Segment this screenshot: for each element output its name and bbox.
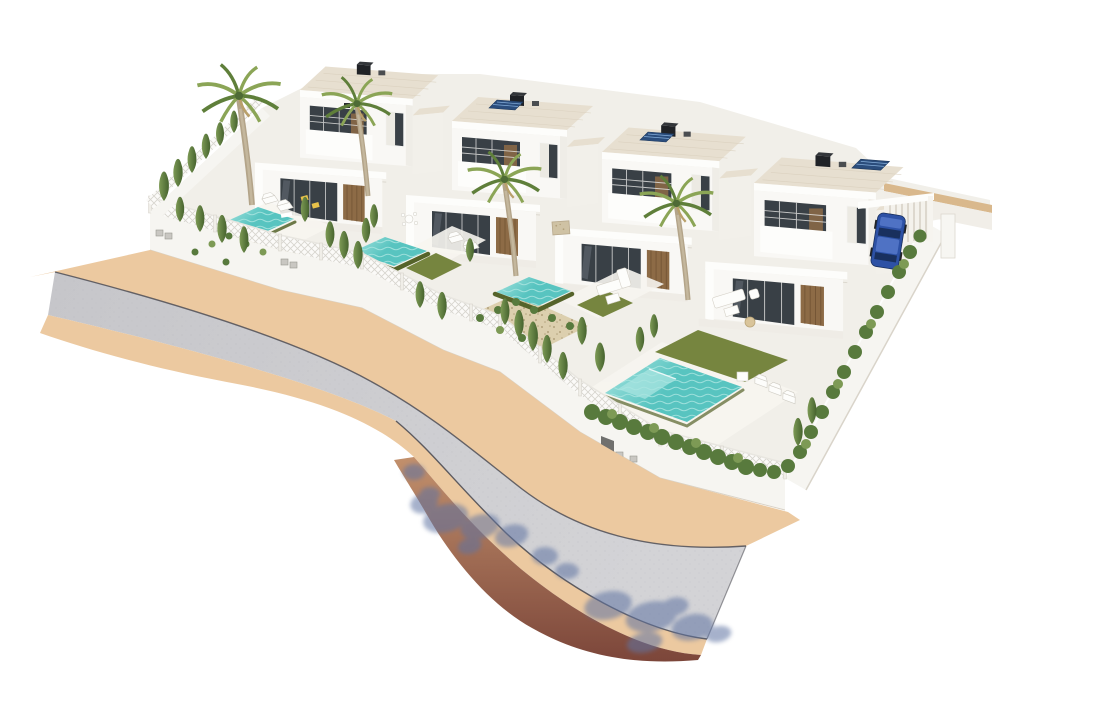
wicker-pouf [745, 317, 755, 327]
carport-post [928, 196, 933, 242]
wall-corner-pillar [941, 214, 955, 258]
stone-barbecue [552, 221, 570, 235]
pool-side-table [737, 372, 748, 381]
render-canvas: Aerial 3D architectural rendering of fou… [0, 0, 1102, 711]
villa-development-rendering: Aerial 3D architectural rendering of fou… [0, 0, 1102, 711]
